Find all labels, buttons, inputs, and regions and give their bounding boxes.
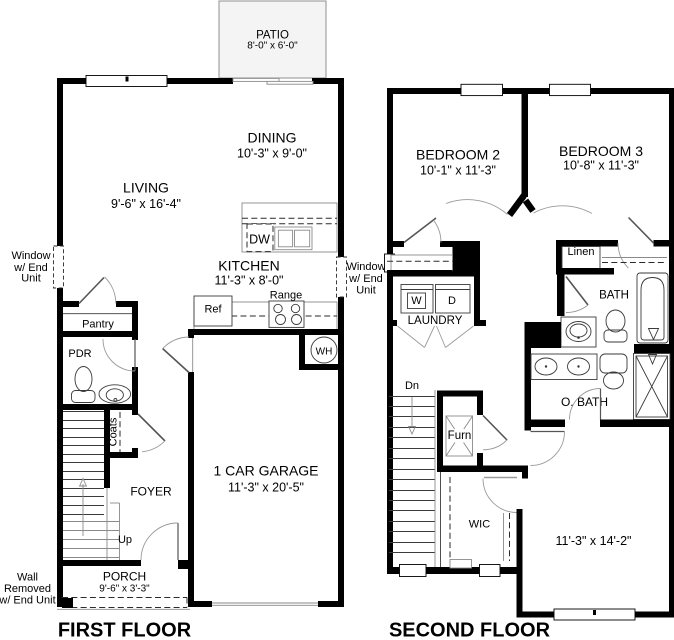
svg-text:Furn: Furn [448, 430, 472, 442]
svg-text:10'-3" x 9'-0": 10'-3" x 9'-0" [237, 146, 307, 160]
svg-text:11'-3" x 8'-0": 11'-3" x 8'-0" [214, 274, 283, 288]
svg-text:KITCHEN: KITCHEN [218, 257, 279, 273]
svg-text:PATIO: PATIO [256, 29, 289, 41]
svg-text:Wall: Wall [17, 572, 38, 584]
svg-text:9'-6" x 16'-4": 9'-6" x 16'-4" [111, 197, 181, 211]
svg-text:Coats: Coats [108, 417, 120, 446]
svg-text:8'-0" x 6'-0": 8'-0" x 6'-0" [247, 41, 298, 52]
svg-text:Ref: Ref [204, 303, 222, 315]
svg-text:PORCH: PORCH [103, 570, 146, 584]
svg-text:Removed: Removed [4, 583, 51, 595]
svg-text:BEDROOM 3: BEDROOM 3 [559, 143, 643, 159]
svg-text:FIRST FLOOR: FIRST FLOOR [58, 620, 192, 640]
svg-text:10'-8" x 11'-3": 10'-8" x 11'-3" [563, 159, 639, 173]
svg-text:PDR: PDR [68, 348, 91, 360]
svg-text:DW: DW [249, 233, 270, 247]
svg-text:Unit: Unit [21, 272, 41, 284]
svg-text:D: D [448, 295, 456, 307]
svg-text:11'-3" x 14'-2": 11'-3" x 14'-2" [556, 534, 632, 548]
svg-text:9'-6" x 3'-3": 9'-6" x 3'-3" [99, 584, 150, 595]
svg-text:w/ End: w/ End [348, 273, 383, 285]
svg-text:BEDROOM 2: BEDROOM 2 [416, 146, 500, 162]
svg-text:Unit: Unit [356, 285, 376, 297]
svg-text:Range: Range [270, 289, 302, 301]
svg-text:BATH: BATH [599, 290, 629, 302]
svg-text:FOYER: FOYER [130, 484, 172, 498]
svg-text:WIC: WIC [469, 518, 490, 530]
svg-text:Up: Up [118, 534, 132, 546]
svg-text:SECOND FLOOR: SECOND FLOOR [389, 620, 551, 640]
svg-text:Linen: Linen [568, 246, 595, 258]
svg-text:W: W [411, 295, 422, 307]
svg-text:Window: Window [346, 261, 385, 273]
svg-text:WH: WH [316, 347, 333, 358]
svg-text:1 CAR GARAGE: 1 CAR GARAGE [213, 463, 318, 479]
svg-text:w/ End Unit: w/ End Unit [0, 595, 56, 607]
svg-text:LIVING: LIVING [123, 179, 169, 195]
svg-text:10'-1" x 11'-3": 10'-1" x 11'-3" [420, 163, 496, 177]
svg-text:Window: Window [11, 250, 50, 262]
svg-text:Dn: Dn [405, 380, 419, 392]
svg-text:Pantry: Pantry [82, 318, 114, 330]
svg-text:11'-3" x 20'-5": 11'-3" x 20'-5" [228, 480, 304, 494]
svg-text:LAUNDRY: LAUNDRY [408, 315, 463, 327]
svg-text:DINING: DINING [248, 130, 297, 146]
